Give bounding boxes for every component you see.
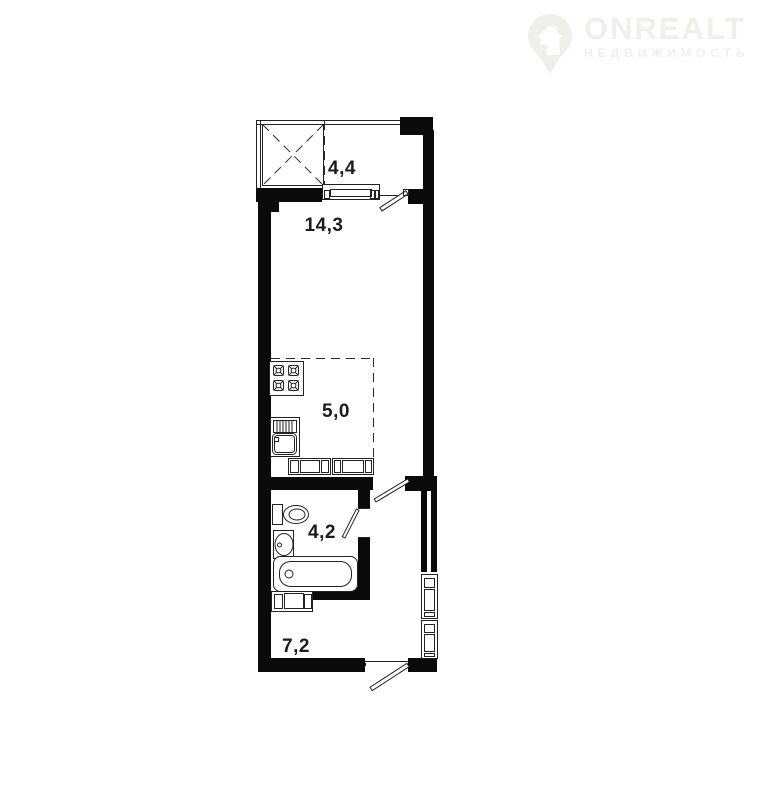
- room-door-leaf: [374, 479, 409, 502]
- wall-mid-right-block: [405, 476, 437, 491]
- wall-bottom-right-block: [408, 658, 437, 672]
- wall-shaft-double-right: [431, 491, 437, 572]
- wall-bottom: [258, 658, 365, 672]
- floorplan: 4,4 14,3 5,0 4,2 7,2: [0, 0, 773, 785]
- bathtub-icon: [274, 557, 358, 592]
- utility-shaft: [422, 575, 438, 619]
- toilet-icon: [273, 505, 309, 525]
- balcony-glazing-box: [263, 125, 324, 186]
- bathroom: [273, 505, 371, 592]
- wall-left: [258, 188, 271, 672]
- balcony-area-label: 4,4: [328, 158, 356, 179]
- glazing-cross-line: [263, 125, 324, 186]
- living-room-area-label: 14,3: [305, 215, 344, 236]
- wall-left-notch: [271, 200, 279, 212]
- stove-icon: [270, 362, 304, 396]
- entry-hinge-mark: [363, 663, 366, 666]
- wall-balcony-stub-right: [408, 189, 424, 204]
- balcony-railing-top: [257, 121, 401, 125]
- room-door: [374, 479, 409, 502]
- glazing-cross-line: [263, 125, 324, 186]
- wall-bathroom-stub: [358, 490, 370, 508]
- washing-machine-icon: [272, 592, 313, 612]
- balcony-railing-left: [257, 121, 261, 189]
- washbasin-icon: [274, 531, 294, 559]
- kitchen-counter: [289, 459, 374, 475]
- balcony-window-unit: [323, 185, 409, 212]
- wall-shaft-double-left: [421, 491, 427, 572]
- bathroom-door-leaf: [342, 509, 359, 538]
- wall-right: [423, 130, 434, 478]
- kitchen-area-label: 5,0: [322, 401, 350, 422]
- entrance-door-leaf: [370, 663, 409, 690]
- wall-mid-horizontal: [258, 477, 373, 490]
- kitchen-sink-icon: [271, 418, 300, 457]
- hallway-area-label: 7,2: [282, 636, 310, 657]
- entrance-door: [365, 662, 409, 691]
- bathroom-area-label: 4,2: [308, 522, 336, 543]
- utility-shaft: [422, 621, 438, 659]
